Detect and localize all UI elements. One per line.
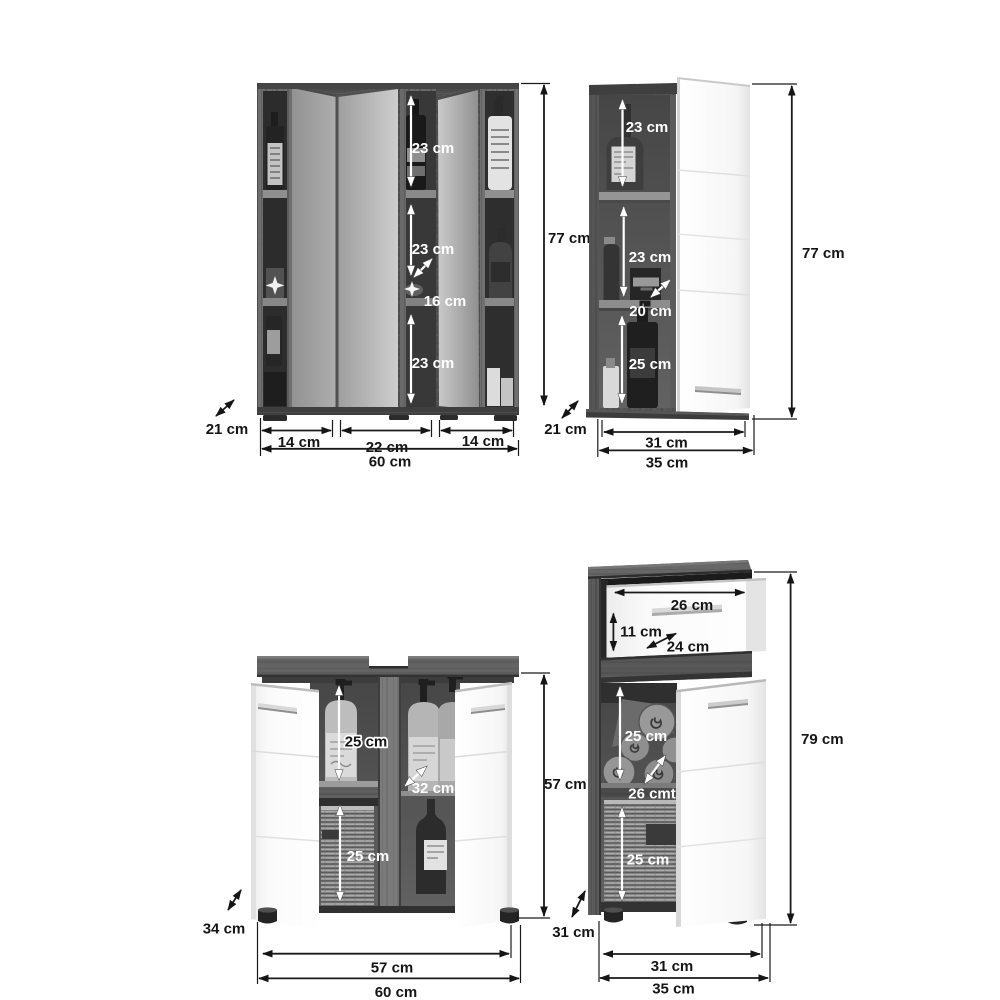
svg-text:25 cm: 25 cm <box>345 734 388 751</box>
svg-text:31 cm: 31 cm <box>645 435 688 452</box>
svg-text:16 cm: 16 cm <box>424 293 467 310</box>
svg-text:32 cm: 32 cm <box>412 780 455 797</box>
svg-text:23 cm: 23 cm <box>412 241 455 258</box>
svg-text:25 cm: 25 cm <box>625 728 668 745</box>
svg-text:20 cm: 20 cm <box>629 303 672 320</box>
svg-text:35 cm: 35 cm <box>646 455 689 472</box>
svg-text:31 cm: 31 cm <box>552 924 595 941</box>
svg-text:23 cm: 23 cm <box>412 355 455 372</box>
svg-text:23 cm: 23 cm <box>412 140 455 157</box>
svg-text:35 cm: 35 cm <box>652 981 695 998</box>
svg-text:77 cm: 77 cm <box>802 245 845 262</box>
svg-text:21 cm: 21 cm <box>206 421 249 438</box>
svg-text:26 cm: 26 cm <box>671 597 714 614</box>
svg-text:25 cm: 25 cm <box>627 852 670 869</box>
svg-text:21 cm: 21 cm <box>544 421 587 438</box>
svg-text:60 cm: 60 cm <box>375 984 418 1000</box>
svg-text:14 cm: 14 cm <box>462 433 505 450</box>
svg-text:34 cm: 34 cm <box>203 921 246 938</box>
svg-text:11 cm: 11 cm <box>620 624 662 641</box>
svg-text:26 cmt: 26 cmt <box>628 786 676 803</box>
svg-text:57 cm: 57 cm <box>544 776 587 793</box>
svg-text:24 cm: 24 cm <box>667 639 710 656</box>
svg-text:77 cm: 77 cm <box>548 230 591 247</box>
svg-text:79 cm: 79 cm <box>801 731 844 748</box>
svg-text:23 cm: 23 cm <box>629 249 672 266</box>
svg-text:25 cm: 25 cm <box>347 848 390 865</box>
svg-text:60 cm: 60 cm <box>369 454 412 471</box>
svg-text:23 cm: 23 cm <box>626 119 669 136</box>
svg-text:25 cm: 25 cm <box>629 356 672 373</box>
svg-text:31 cm: 31 cm <box>651 958 694 975</box>
svg-text:57 cm: 57 cm <box>371 960 414 977</box>
